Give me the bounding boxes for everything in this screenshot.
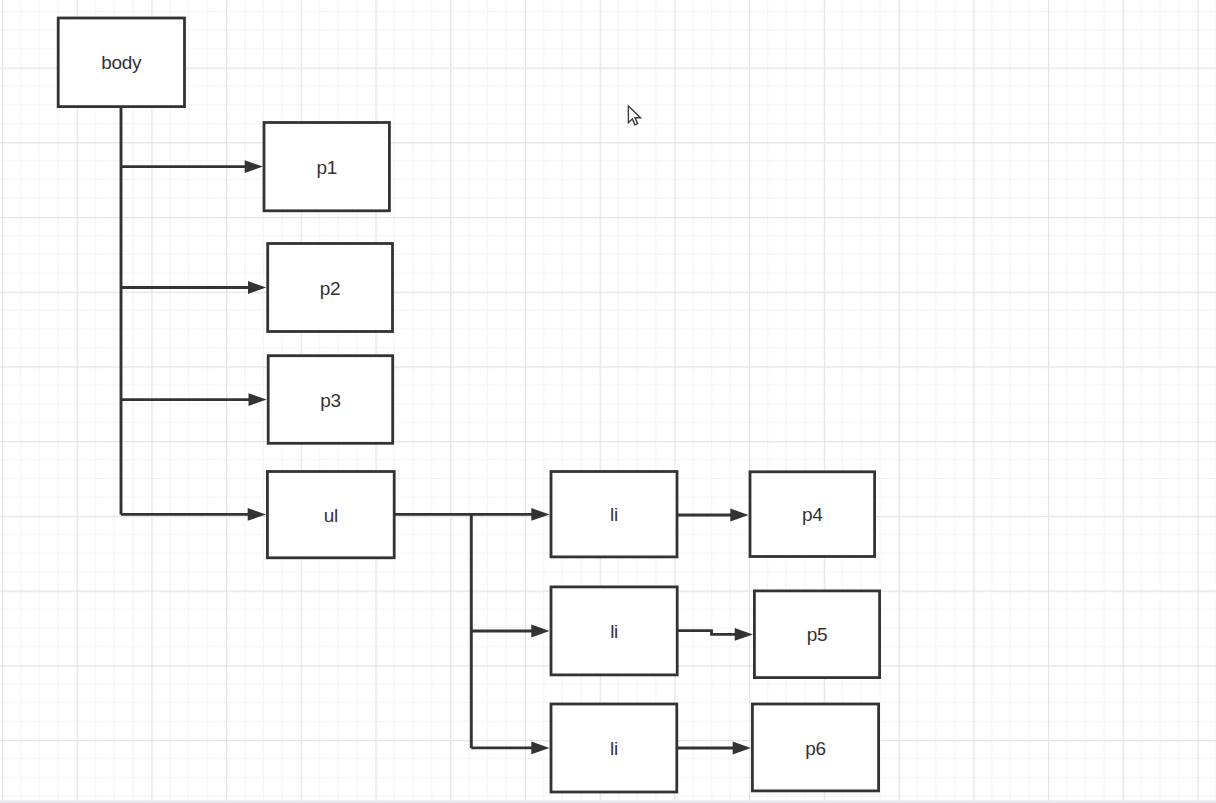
svg-text:li: li	[610, 504, 618, 525]
svg-text:p2: p2	[320, 278, 341, 299]
svg-text:li: li	[610, 621, 618, 642]
svg-text:p4: p4	[802, 504, 823, 525]
svg-text:li: li	[610, 738, 618, 759]
svg-text:body: body	[101, 52, 142, 73]
svg-text:p3: p3	[320, 390, 341, 411]
svg-text:p6: p6	[805, 738, 826, 759]
svg-text:ul: ul	[324, 505, 338, 526]
svg-text:p1: p1	[316, 157, 337, 178]
svg-text:p5: p5	[807, 624, 828, 645]
